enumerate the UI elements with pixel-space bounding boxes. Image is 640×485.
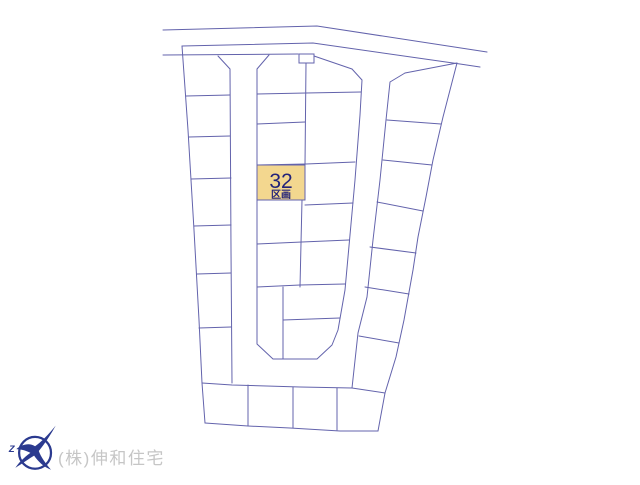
right-column-top-edge [405, 63, 457, 73]
inner-block-outline [257, 55, 362, 359]
mid-divider-h5 [257, 240, 349, 244]
right-col-bottom-edge [352, 388, 385, 393]
bottom-boundary [205, 423, 378, 431]
sign-box [299, 54, 314, 63]
company-logo: Z [6, 420, 66, 480]
left-col-divider-5 [197, 273, 231, 274]
mid-divider-v1 [305, 63, 306, 165]
bird-icon: Z [6, 420, 66, 480]
right-col-divider-1 [387, 120, 441, 124]
left-col-divider-6 [199, 327, 231, 328]
left-col-divider-1 [186, 95, 230, 96]
mid-divider-v2 [300, 200, 302, 287]
top-road-far-edge [163, 26, 487, 52]
site-plan: 32区画 [0, 0, 640, 480]
company-name-watermark: (株)伸和住宅 [58, 444, 165, 469]
right-col-divider-3 [377, 202, 423, 211]
mid-divider-h7 [283, 318, 340, 320]
mid-divider-h2 [257, 122, 305, 124]
mid-column-top-edge [314, 56, 352, 69]
mid-divider-h6 [257, 284, 345, 287]
right-col-divider-2 [383, 160, 432, 165]
left-col-divider-3 [191, 178, 231, 179]
left-col-divider-4 [194, 225, 231, 226]
mid-divider-h4-right [305, 203, 353, 205]
mid-divider-h1 [257, 92, 361, 94]
north-boundary-line [163, 54, 298, 55]
left-boundary [182, 46, 205, 423]
left-road-outer-edge [218, 56, 232, 383]
right-col-divider-6 [359, 336, 399, 343]
right-boundary [378, 63, 457, 431]
logo-z-mark: Z [8, 444, 16, 454]
highlighted-lot-suffix: 区画 [271, 189, 291, 201]
left-col-divider-2 [189, 136, 230, 137]
right-col-divider-5 [365, 287, 409, 294]
right-col-divider-4 [370, 247, 416, 253]
bottom-road-outer-edge [202, 383, 352, 388]
